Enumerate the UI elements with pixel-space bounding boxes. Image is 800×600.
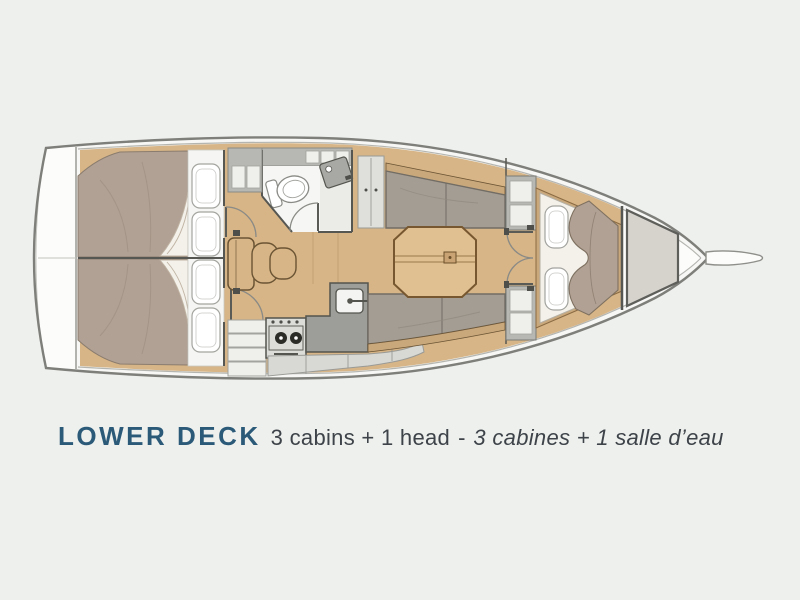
forepeak-locker <box>627 210 678 306</box>
galley-drawer <box>228 334 266 347</box>
caption-separator: - <box>458 425 465 451</box>
lower-deck-floorplan: LOWER DECK 3 cabins + 1 head - 3 cabines… <box>0 0 800 600</box>
bow-section <box>622 206 678 310</box>
stove-burner-cap <box>279 336 283 340</box>
pillow <box>545 206 568 248</box>
wardrobe-handle <box>375 189 378 192</box>
vanity-locker-front <box>306 151 319 163</box>
locker-front <box>510 181 532 202</box>
locker-front <box>510 205 532 226</box>
door-hinge <box>504 228 509 235</box>
locker-front <box>247 166 260 188</box>
wardrobe-handle <box>365 189 368 192</box>
step-hinge <box>233 230 240 236</box>
caption-subtitle-en: 3 cabins + 1 head <box>271 425 450 451</box>
locker-front <box>510 313 532 334</box>
table-latch-dot <box>449 256 452 259</box>
floorplan-canvas <box>0 0 800 600</box>
stove-burner-cap <box>294 336 298 340</box>
locker-front <box>510 290 532 311</box>
caption-title: LOWER DECK <box>58 421 261 452</box>
bowsprit <box>706 251 763 265</box>
step-base <box>228 238 254 290</box>
door-latch <box>527 286 534 291</box>
stove-knob <box>271 320 274 323</box>
stove-knob <box>279 320 282 323</box>
galley-drawer <box>228 362 266 376</box>
step-top <box>270 248 296 279</box>
galley-drawer <box>228 348 266 361</box>
caption: LOWER DECK 3 cabins + 1 head - 3 cabines… <box>58 421 724 452</box>
caption-subtitle-fr: 3 cabines + 1 salle d’eau <box>473 425 723 451</box>
door-latch <box>527 225 534 230</box>
stove-knob <box>295 320 298 323</box>
stove-knob <box>287 320 290 323</box>
galley-drawer <box>228 320 266 333</box>
locker-front <box>232 166 245 188</box>
step-hinge <box>233 288 240 294</box>
door-hinge <box>504 281 509 288</box>
pillow <box>545 268 568 310</box>
